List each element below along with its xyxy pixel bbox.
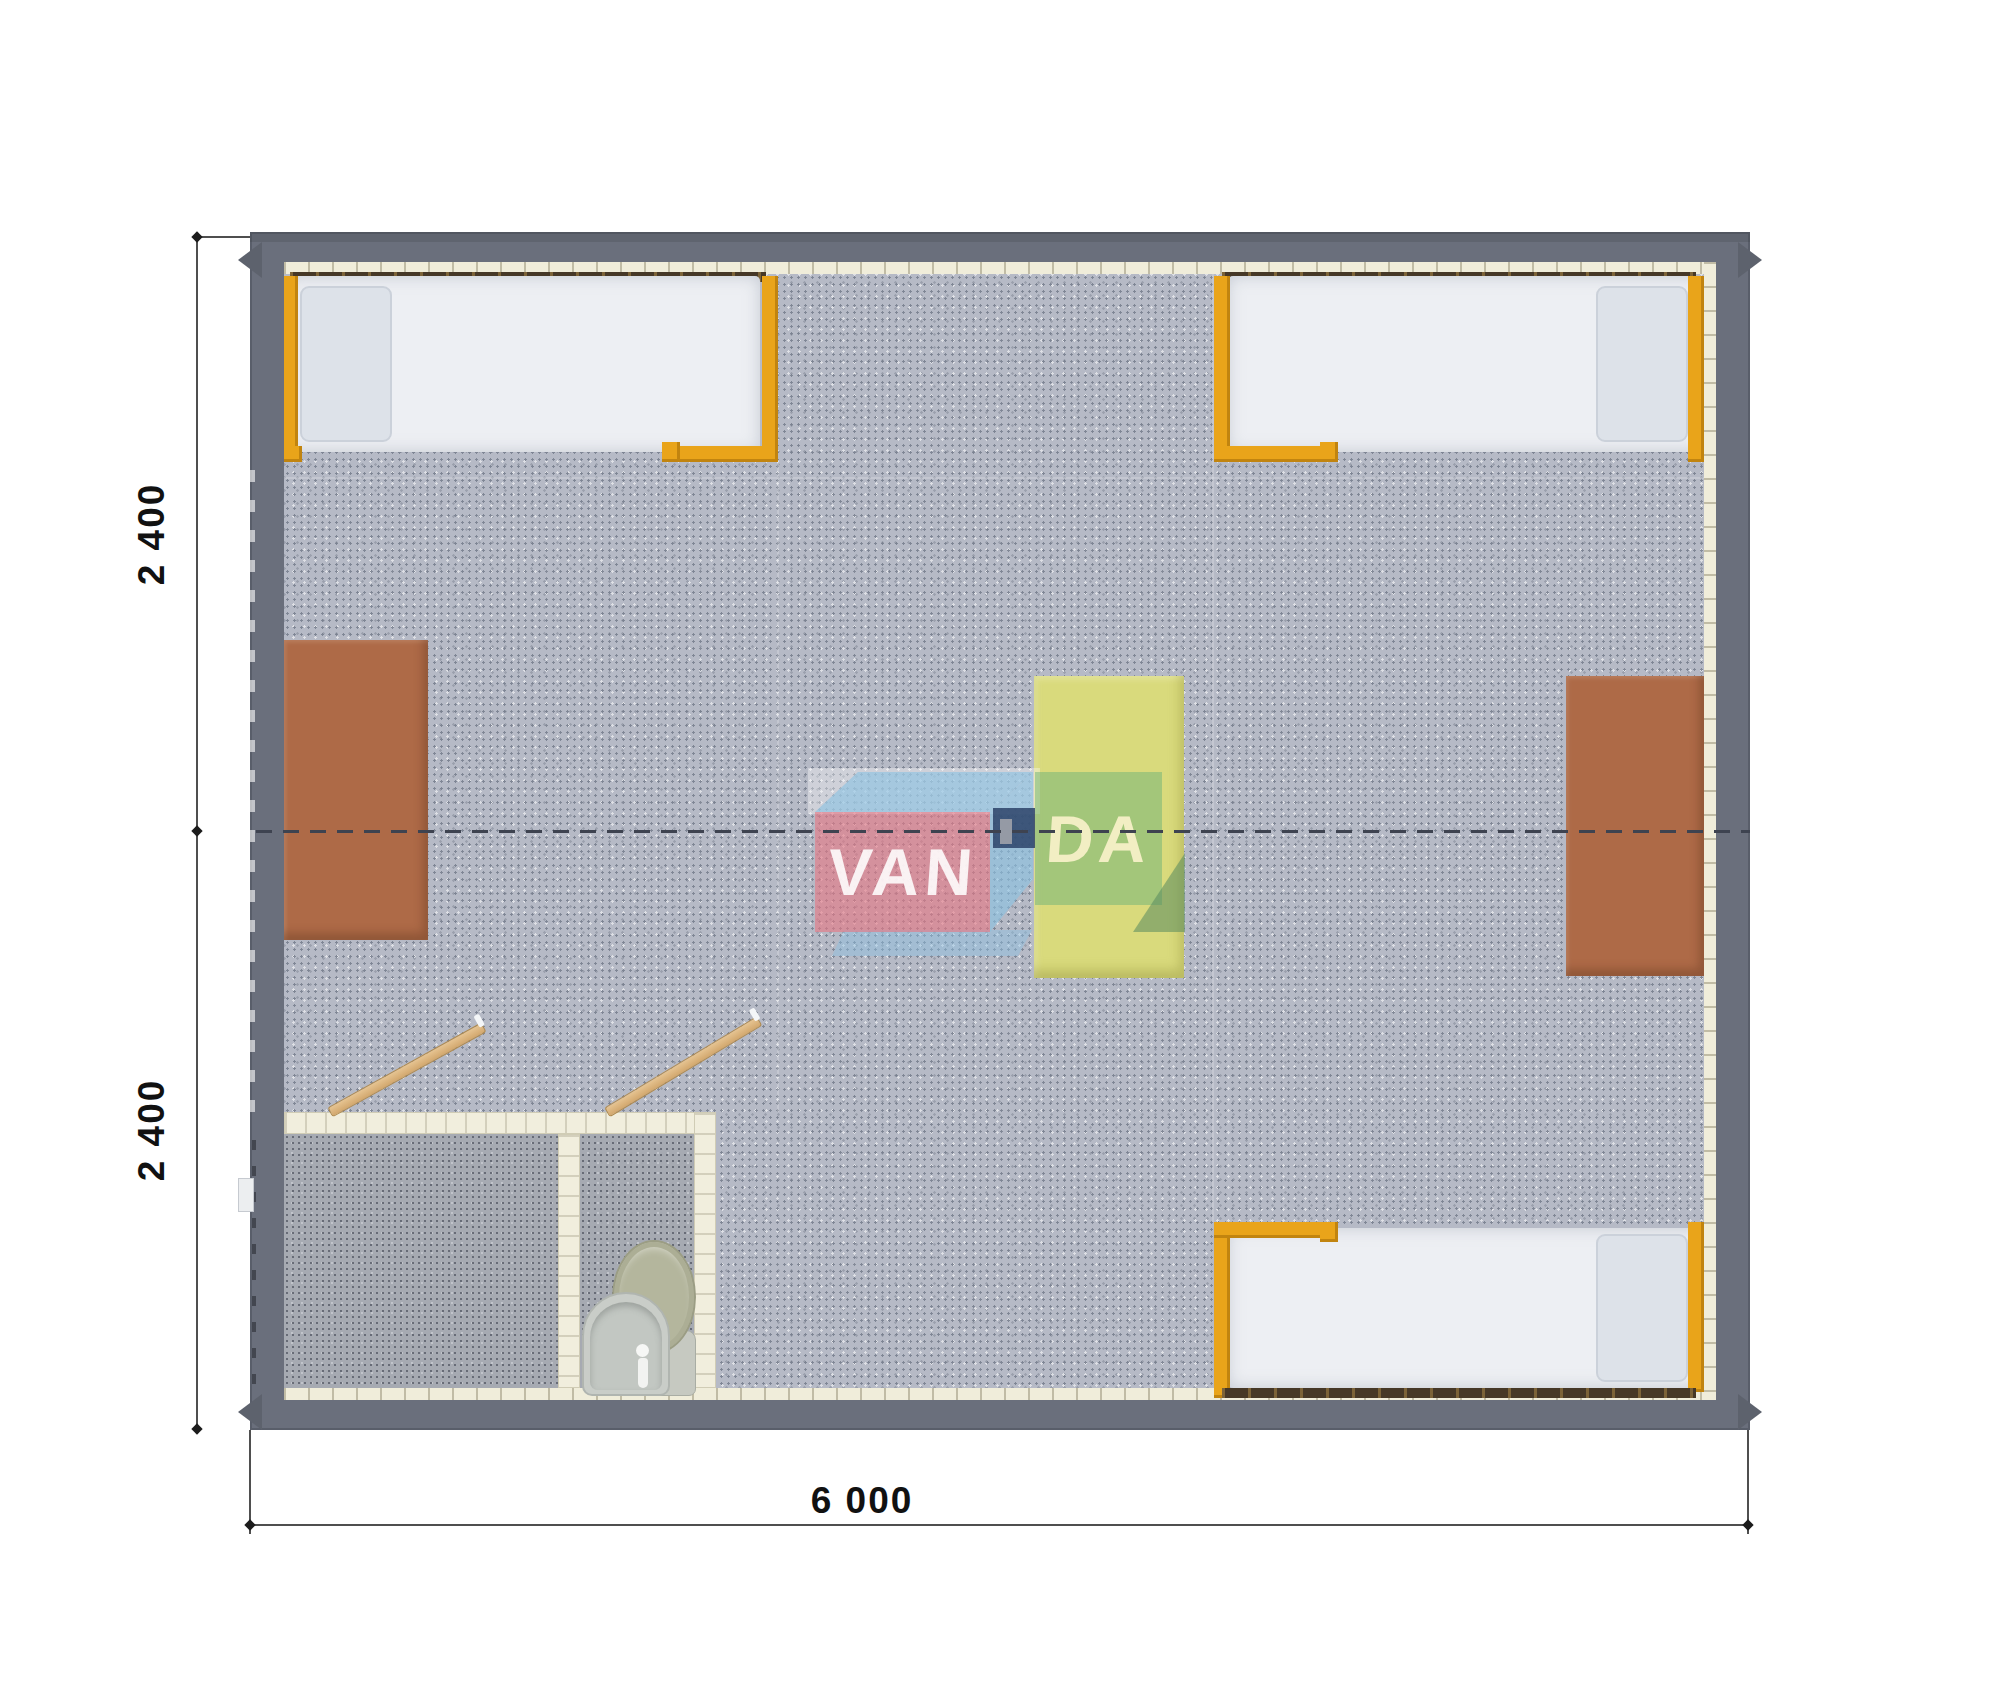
dimension-label-bottom: 6 000 <box>811 1480 914 1522</box>
desk-right <box>1566 676 1704 976</box>
bathroom-wall-divider <box>558 1134 580 1388</box>
corner-trim-bottom-right <box>1738 1394 1762 1430</box>
bathroom-room-left-floor <box>284 1134 558 1388</box>
bed-frame-foot <box>1214 446 1324 462</box>
dimension-tick <box>244 1519 255 1530</box>
bed-top-right <box>1214 272 1704 462</box>
sink <box>582 1292 670 1396</box>
exterior-door-mark <box>238 1178 254 1212</box>
dimension-label-left-top: 2 400 <box>131 483 173 586</box>
bed-frame-foot-tab <box>1320 1222 1338 1242</box>
center-axis-dashed-line <box>256 830 1750 833</box>
bathroom-wall-right <box>694 1112 716 1388</box>
faucet-knob <box>636 1344 649 1357</box>
table-center <box>1034 676 1184 978</box>
dimension-tick <box>191 1423 202 1434</box>
faucet-stem <box>638 1358 648 1388</box>
dimension-label-left-bottom: 2 400 <box>131 1079 173 1182</box>
bed-frame-foot-tab <box>1320 442 1338 462</box>
bed-frame-foot <box>668 446 778 462</box>
bed-frame-foot-tab <box>662 442 680 462</box>
wall-cladding-texture <box>250 470 255 1130</box>
bed-frame-left <box>1214 276 1230 462</box>
bed-frame-left <box>1214 1222 1230 1398</box>
bed-frame-right <box>1688 1222 1704 1392</box>
desk-left <box>284 640 428 940</box>
dimension-tick <box>191 231 202 242</box>
corner-trim-top-right <box>1738 242 1762 278</box>
bed-top-left <box>284 272 778 462</box>
pillow <box>1596 286 1688 442</box>
dimension-tick <box>191 825 202 836</box>
floor-seam <box>284 477 1704 479</box>
pillow <box>300 286 392 442</box>
dimension-line-bottom <box>250 1524 1749 1526</box>
bed-frame-left <box>284 276 298 462</box>
dimension-tick <box>1742 1519 1753 1530</box>
floor-seam <box>777 460 779 1112</box>
bed-frame-right <box>762 276 778 462</box>
bed-frame-foot <box>1214 1222 1324 1238</box>
pillow <box>1596 1234 1688 1382</box>
bed-frame-corner <box>284 446 302 462</box>
floor-plan-canvas: 2 400 2 400 6 000 <box>0 0 2000 1701</box>
bed-bottom-right <box>1214 1222 1704 1398</box>
sink-bowl <box>590 1302 662 1390</box>
bathroom-wall-horizontal <box>284 1112 716 1134</box>
bed-frame-right <box>1688 276 1704 462</box>
bed-foot-rail <box>1222 1388 1696 1398</box>
